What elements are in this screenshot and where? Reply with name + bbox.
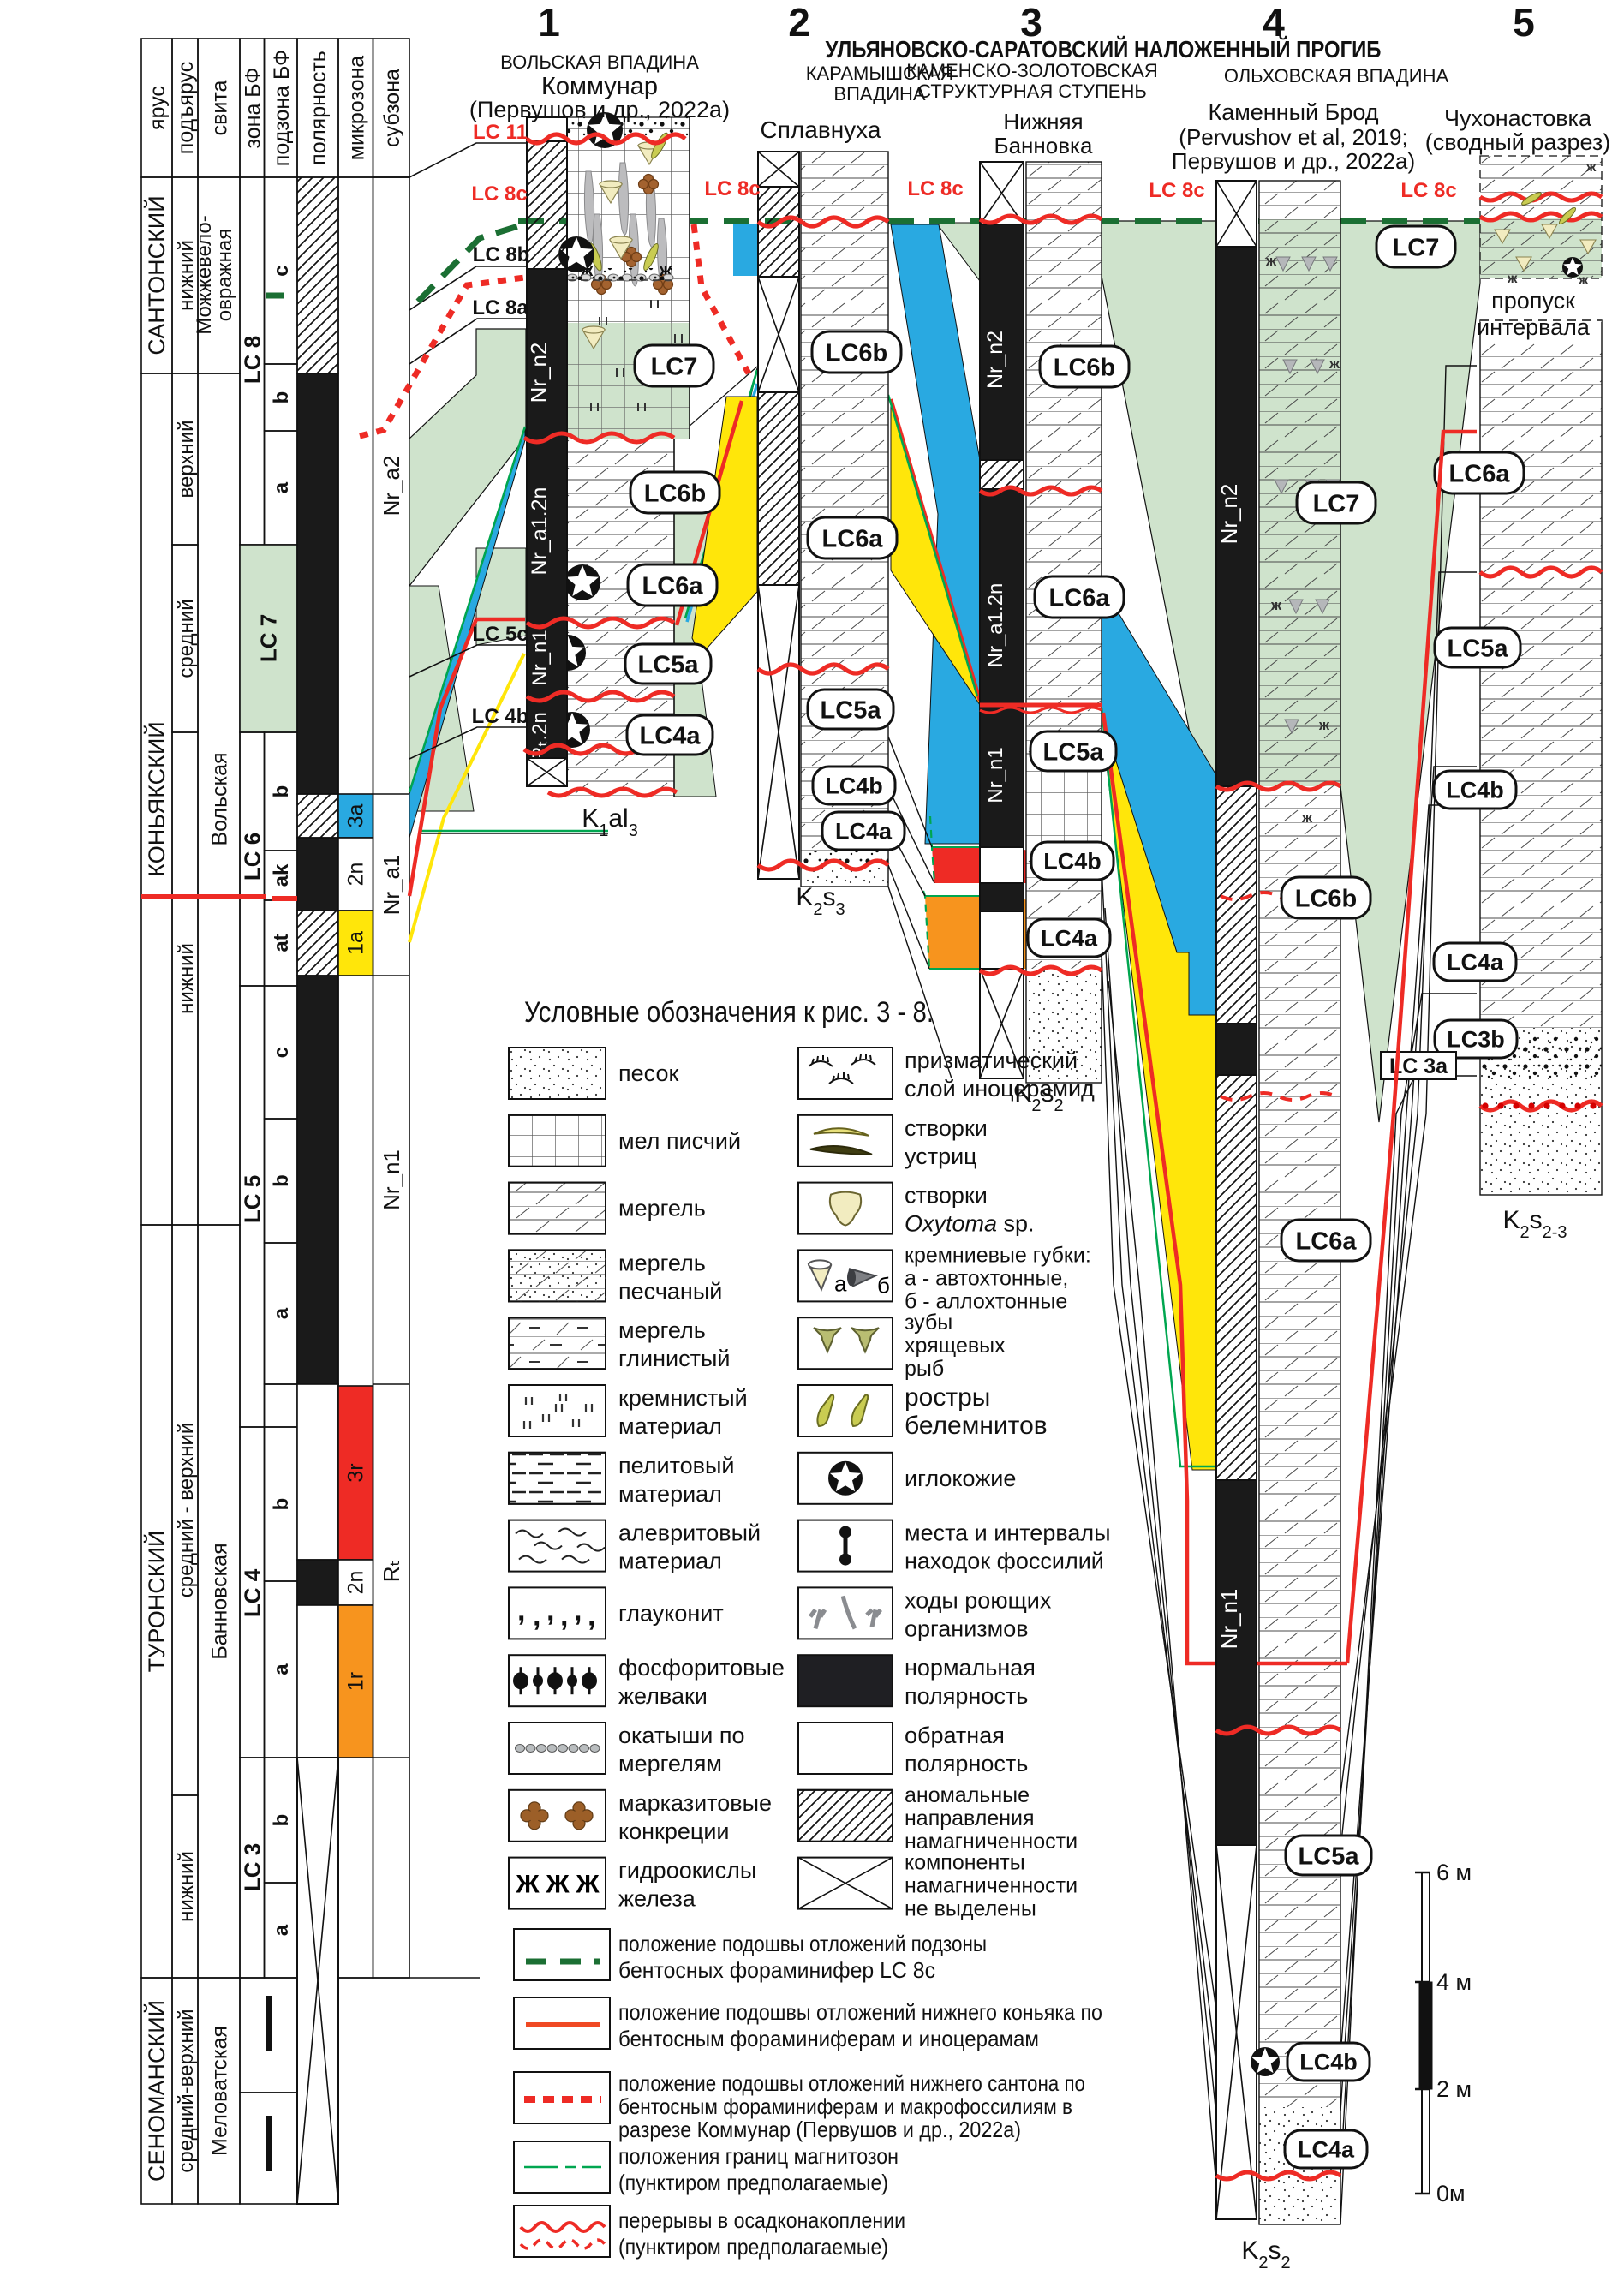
svg-text:Банновская: Банновская [208,1543,232,1659]
svg-text:Банновка: Банновка [994,133,1093,158]
svg-text:УЛЬЯНОВСКО-САРАТОВСКИЙ НАЛОЖЕ: УЛЬЯНОВСКО-САРАТОВСКИЙ НАЛОЖЕННЫЙ ПРОГИБ [826,35,1382,63]
svg-text:компоненты: компоненты [905,1851,1025,1875]
svg-text:Нижняя: Нижняя [1003,109,1083,134]
svg-text:a: a [270,1307,293,1319]
svg-text:ярус: ярус [146,86,170,130]
svg-text:нижний: нижний [175,943,198,1014]
svg-text:средний-верхний: средний-верхний [175,2009,198,2172]
svg-text:LC4b: LC4b [1446,778,1504,803]
svg-text:рыб: рыб [905,1357,944,1381]
svg-text:алевритовый: алевритовый [618,1520,761,1546]
svg-text:LC4b: LC4b [1043,849,1102,875]
svg-text:LC5a: LC5a [638,651,700,678]
svg-text:5: 5 [1513,0,1535,45]
svg-text:интервала: интервала [1477,314,1591,340]
svg-text:перерывы в осадконакоплении: перерывы в осадконакоплении [618,2207,905,2233]
svg-text:направления: направления [905,1806,1035,1830]
svg-text:Условные обозначения к рис. 3: Условные обозначения к рис. 3 - 8. [524,996,934,1029]
svg-text:LC7: LC7 [1313,490,1360,517]
svg-text:b: b [270,1498,293,1511]
svg-text:LC 3: LC 3 [239,1843,265,1891]
svg-text:LC4a: LC4a [1447,950,1504,976]
svg-text:конкреции: конкреции [618,1818,730,1844]
svg-text:а: а [834,1270,847,1296]
svg-text:не выделены: не выделены [905,1897,1036,1921]
svg-text:LC6a: LC6a [822,525,884,552]
svg-text:а - автохтонные,: а - автохтонные, [905,1266,1068,1290]
svg-text:глинистый: глинистый [618,1346,730,1371]
svg-text:слой иноцерамид: слой иноцерамид [905,1076,1095,1102]
svg-text:LC4a: LC4a [1298,2137,1355,2163]
svg-text:б - аллохтонные: б - аллохтонные [905,1289,1067,1313]
svg-text:1r: 1r [343,1672,367,1691]
svg-text:КАМЕНСКО-ЗОЛОТОВСКАЯ: КАМЕНСКО-ЗОЛОТОВСКАЯ [906,60,1158,81]
svg-text:LC 11: LC 11 [473,121,528,144]
svg-text:песок: песок [618,1060,678,1086]
svg-text:Ж: Ж [515,1871,540,1899]
svg-text:LC4a: LC4a [640,722,702,749]
svg-text:ж: ж [1585,160,1597,175]
svg-text:0м: 0м [1436,2181,1466,2206]
svg-text:LC6b: LC6b [1054,354,1116,381]
svg-text:LC 4b: LC 4b [472,705,529,728]
svg-text:створки: створки [905,1115,988,1141]
svg-text:Вольская: Вольская [208,752,232,845]
svg-text:средний: средний [175,599,198,678]
svg-text:at: at [270,934,293,952]
svg-text:фосфоритовые: фосфоритовые [618,1655,785,1681]
svg-text:подзона БФ: подзона БФ [270,50,294,166]
svg-text:LC4b: LC4b [825,773,883,799]
svg-text:бентосным фораминиферам и макр: бентосным фораминиферам и макрофоссилиям… [618,2093,1072,2119]
svg-text:полярность: полярность [307,51,331,165]
svg-text:LC6b: LC6b [1295,885,1358,912]
svg-text:LC6a: LC6a [1049,584,1111,612]
svg-text:LC7: LC7 [651,353,698,380]
svg-text:ж: ж [1328,355,1340,372]
svg-text:мергель: мергель [618,1317,706,1343]
svg-text:LC 7: LC 7 [256,614,282,662]
svg-text:разрезе Коммунар (Первушов и д: разрезе Коммунар (Первушов и др., 2022а) [618,2117,1021,2142]
svg-text:,: , [560,1599,568,1632]
svg-text:нормальная: нормальная [905,1655,1036,1681]
svg-text:1a: 1a [343,931,367,955]
svg-text:белемнитов: белемнитов [905,1412,1048,1440]
svg-text:Nr_a1.2n: Nr_a1.2n [984,583,1007,668]
svg-text:нижний: нижний [175,1851,198,1922]
svg-text:LC6a: LC6a [642,572,704,600]
svg-text:LC6b: LC6b [826,339,888,367]
svg-text:ж: ж [1507,272,1518,286]
svg-text:LC 5c: LC 5c [472,623,528,646]
svg-text:ТУРОНСКИЙ: ТУРОНСКИЙ [143,1531,170,1673]
svg-text:ak: ak [270,863,293,887]
svg-text:Nr_n2: Nr_n2 [526,343,552,403]
svg-text:положение подошвы отложений ни: положение подошвы отложений нижнего конь… [618,1999,1102,2025]
svg-text:2: 2 [788,0,810,45]
svg-text:a: a [270,1924,293,1936]
svg-text:b: b [270,1814,293,1827]
svg-text:Сплавнуха: Сплавнуха [761,116,881,143]
svg-text:ж: ж [1578,273,1589,288]
svg-text:b: b [270,785,293,798]
svg-text:средний - верхний: средний - верхний [175,1423,198,1598]
svg-text:зубы: зубы [905,1311,952,1335]
svg-text:LC 6: LC 6 [239,833,265,881]
svg-text:LC5a: LC5a [1448,635,1509,662]
svg-text:Nr_n1: Nr_n1 [1216,1589,1242,1650]
svg-text:находок фоссилий: находок фоссилий [905,1549,1104,1574]
svg-text:,: , [546,1594,554,1627]
svg-text:ВПАДИНА: ВПАДИНА [833,83,925,104]
svg-text:LC 8a: LC 8a [472,296,528,319]
svg-text:3r: 3r [343,1463,367,1482]
svg-text:пелитовый: пелитовый [618,1453,735,1478]
svg-text:мергелям: мергелям [618,1751,722,1776]
svg-text:б: б [877,1272,890,1298]
svg-text:полярность: полярность [905,1751,1028,1776]
svg-text:глауконит: глауконит [618,1600,724,1626]
svg-text:LC 8c: LC 8c [704,177,760,200]
svg-text:2n: 2n [343,863,367,887]
svg-text:LC 4: LC 4 [239,1568,265,1617]
svg-text:Ж: Ж [575,1871,600,1899]
svg-text:LC5a: LC5a [1299,1842,1360,1870]
svg-text:ж: ж [1318,717,1330,733]
svg-text:Nr_a2: Nr_a2 [379,456,404,516]
svg-text:LC 8c: LC 8c [471,182,527,206]
svg-text:свита: свита [208,80,232,135]
svg-text:LC3b: LC3b [1447,1027,1505,1053]
svg-text:LC7: LC7 [1393,234,1440,261]
svg-text:Rₜ: Rₜ [379,1560,404,1582]
svg-text:Чухонастовка: Чухонастовка [1444,105,1592,131]
svg-text:створки: створки [905,1183,988,1209]
svg-text:c: c [270,265,293,276]
svg-text:положения границ магнитозон: положения границ магнитозон [618,2143,899,2169]
svg-text:окатыши по: окатыши по [618,1723,745,1748]
svg-text:аномальные: аномальные [905,1783,1030,1807]
svg-text:намагниченности: намагниченности [905,1874,1078,1898]
svg-text:ВОЛЬСКАЯ ВПАДИНА: ВОЛЬСКАЯ ВПАДИНА [500,51,699,73]
svg-text:,: , [517,1594,525,1627]
svg-text:LC 8b: LC 8b [473,243,530,266]
svg-text:ростры: ростры [905,1383,990,1412]
svg-text:1: 1 [538,0,560,45]
svg-text:обратная: обратная [905,1723,1005,1748]
svg-text:пропуск: пропуск [1491,288,1575,313]
svg-text:LC4b: LC4b [1299,2050,1358,2075]
svg-text:Nr_n2: Nr_n2 [983,331,1007,389]
svg-text:гидроокислы: гидроокислы [618,1858,756,1884]
svg-text:марказитовые: марказитовые [618,1790,772,1816]
svg-text:материал: материал [618,1413,722,1439]
svg-text:,: , [574,1594,582,1627]
svg-text:(сводный разрез): (сводный разрез) [1425,129,1611,155]
svg-text:Каменный Брод: Каменный Брод [1208,99,1378,125]
svg-text:Первушов и др., 2022а): Первушов и др., 2022а) [1172,148,1415,174]
svg-text:LC 8c: LC 8c [1149,179,1204,202]
svg-text:2 м: 2 м [1436,2076,1472,2102]
svg-text:4 м: 4 м [1436,1969,1472,1995]
svg-text:САНТОНСКИЙ: САНТОНСКИЙ [143,195,170,355]
svg-text:песчаный: песчаный [618,1278,722,1304]
svg-text:LC 8c: LC 8c [1400,179,1456,202]
svg-text:LC5a: LC5a [821,696,882,724]
svg-text:LC 5: LC 5 [239,1175,265,1223]
svg-text:3a: 3a [343,804,367,828]
svg-text:b: b [270,391,293,404]
svg-text:Nr_n1: Nr_n1 [379,1149,404,1210]
svg-text:ж: ж [1301,809,1313,826]
svg-text:положение подошвы отложений ни: положение подошвы отложений нижнего сант… [618,2070,1085,2096]
svg-text:(пунктиром предполагаемые): (пунктиром предполагаемые) [618,2170,888,2195]
svg-text:верхний: верхний [175,421,198,499]
svg-text:b: b [270,1174,293,1187]
svg-text:c: c [270,1047,293,1058]
svg-text:Nr_n2: Nr_n2 [1216,484,1242,545]
svg-text:LC4a: LC4a [835,819,893,845]
svg-text:ходы роющих: ходы роющих [905,1587,1052,1613]
svg-text:СЕНОМАНСКИЙ: СЕНОМАНСКИЙ [143,2000,170,2182]
svg-text:зона БФ: зона БФ [241,68,265,149]
svg-text:LC5a: LC5a [1043,738,1105,766]
svg-text:кремниевые губки:: кремниевые губки: [905,1243,1091,1267]
svg-text:Ж: Ж [545,1871,570,1899]
svg-text:субзона: субзона [380,69,404,147]
svg-text:СТРУКТУРНАЯ СТУПЕНЬ: СТРУКТУРНАЯ СТУПЕНЬ [917,81,1147,102]
svg-text:(пунктиром предполагаемые): (пунктиром предполагаемые) [618,2234,888,2260]
svg-text:a: a [270,1663,293,1675]
svg-text:ОЛЬХОВСКАЯ ВПАДИНА: ОЛЬХОВСКАЯ ВПАДИНА [1224,65,1449,87]
svg-text:положение подошвы отложений по: положение подошвы отложений подзоны [618,1931,987,1956]
svg-text:мергель: мергель [618,1196,706,1221]
svg-text:a: a [270,481,293,493]
svg-text:LC6a: LC6a [1296,1227,1358,1255]
svg-text:полярность: полярность [905,1683,1028,1709]
svg-text:желваки: желваки [618,1683,708,1709]
svg-text:Можжевело-: Можжевело- [193,215,216,334]
svg-text:микрозона: микрозона [344,56,368,161]
svg-text:,: , [533,1599,540,1632]
svg-text:места и интервалы: места и интервалы [905,1520,1111,1546]
svg-text:материал: материал [618,1549,722,1574]
svg-text:намагниченности: намагниченности [905,1830,1078,1854]
svg-text:материал: материал [618,1481,722,1507]
svg-text:LC4a: LC4a [1041,926,1098,952]
svg-text:призматический: призматический [905,1048,1078,1073]
svg-text:овражная: овражная [213,229,236,321]
svg-text:(Pervushov et al, 2019;: (Pervushov et al, 2019; [1179,124,1407,150]
svg-text:LC6a: LC6a [1449,460,1511,487]
svg-text:6 м: 6 м [1436,1860,1472,1885]
svg-text:LC 8c: LC 8c [907,177,963,200]
svg-text:LC 8: LC 8 [239,336,265,384]
svg-text:LC6b: LC6b [644,480,707,507]
svg-text:Nr_a1.2n: Nr_a1.2n [528,487,552,576]
svg-text:,: , [588,1599,595,1632]
svg-text:(Первушов и др., 2022а): (Первушов и др., 2022а) [469,97,730,122]
svg-text:ж: ж [1265,253,1277,269]
svg-text:бентосным фораминиферам и иноц: бентосным фораминиферам и иноцерамам [618,2026,1039,2051]
svg-text:мел писчий: мел писчий [618,1128,741,1154]
svg-text:железа: железа [618,1886,696,1912]
svg-text:иглокожие: иглокожие [905,1466,1016,1491]
svg-text:подъярус: подъярус [174,62,198,154]
svg-text:Oxytoma sp.: Oxytoma sp. [905,1211,1035,1237]
svg-text:кремнистый: кремнистый [618,1385,748,1411]
svg-text:Nr_a1: Nr_a1 [379,855,404,916]
svg-text:КОНЬЯКСКИЙ: КОНЬЯКСКИЙ [143,721,170,876]
svg-text:бентосных фораминифер LC 8c: бентосных фораминифер LC 8c [618,1957,935,1983]
svg-text:ж: ж [1270,597,1282,613]
svg-text:устриц: устриц [905,1143,977,1169]
svg-text:Меловатская: Меловатская [208,2026,232,2156]
svg-text:Nr_n1: Nr_n1 [528,630,552,685]
svg-text:хрящевых: хрящевых [905,1334,1006,1358]
svg-text:организмов: организмов [905,1615,1029,1641]
svg-text:мергель: мергель [618,1250,706,1275]
svg-text:Nr_n1: Nr_n1 [984,747,1007,803]
svg-text:2n: 2n [343,1571,367,1595]
